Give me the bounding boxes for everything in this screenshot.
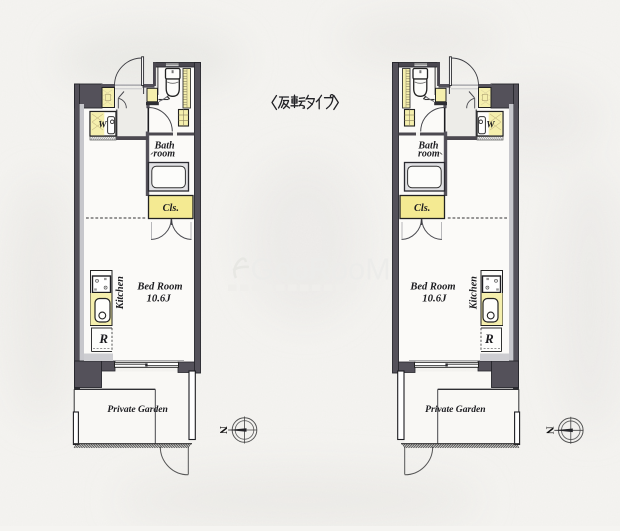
svg-text:N: N [217, 426, 229, 434]
svg-text:Kitchen: Kitchen [115, 276, 126, 310]
svg-text:GooRooM: GooRooM [251, 253, 391, 287]
svg-text:W: W [98, 120, 107, 130]
svg-text:R: R [98, 331, 108, 346]
svg-text:N: N [543, 426, 555, 434]
svg-text:Bed Room: Bed Room [409, 281, 455, 292]
svg-text:Private Garden: Private Garden [107, 404, 168, 415]
svg-text:Cls.: Cls. [414, 203, 430, 214]
svg-text:10.6J: 10.6J [146, 293, 171, 305]
svg-text:room: room [153, 149, 175, 160]
svg-text:Cls.: Cls. [163, 203, 179, 214]
svg-text:10.6J: 10.6J [422, 293, 447, 305]
svg-text:Private Garden: Private Garden [425, 404, 486, 415]
svg-text:room: room [418, 149, 440, 160]
svg-text:Kitchen: Kitchen [469, 276, 480, 310]
svg-text:W: W [486, 120, 495, 130]
svg-text:Bed Room: Bed Room [136, 281, 182, 292]
svg-text:R: R [484, 331, 494, 346]
